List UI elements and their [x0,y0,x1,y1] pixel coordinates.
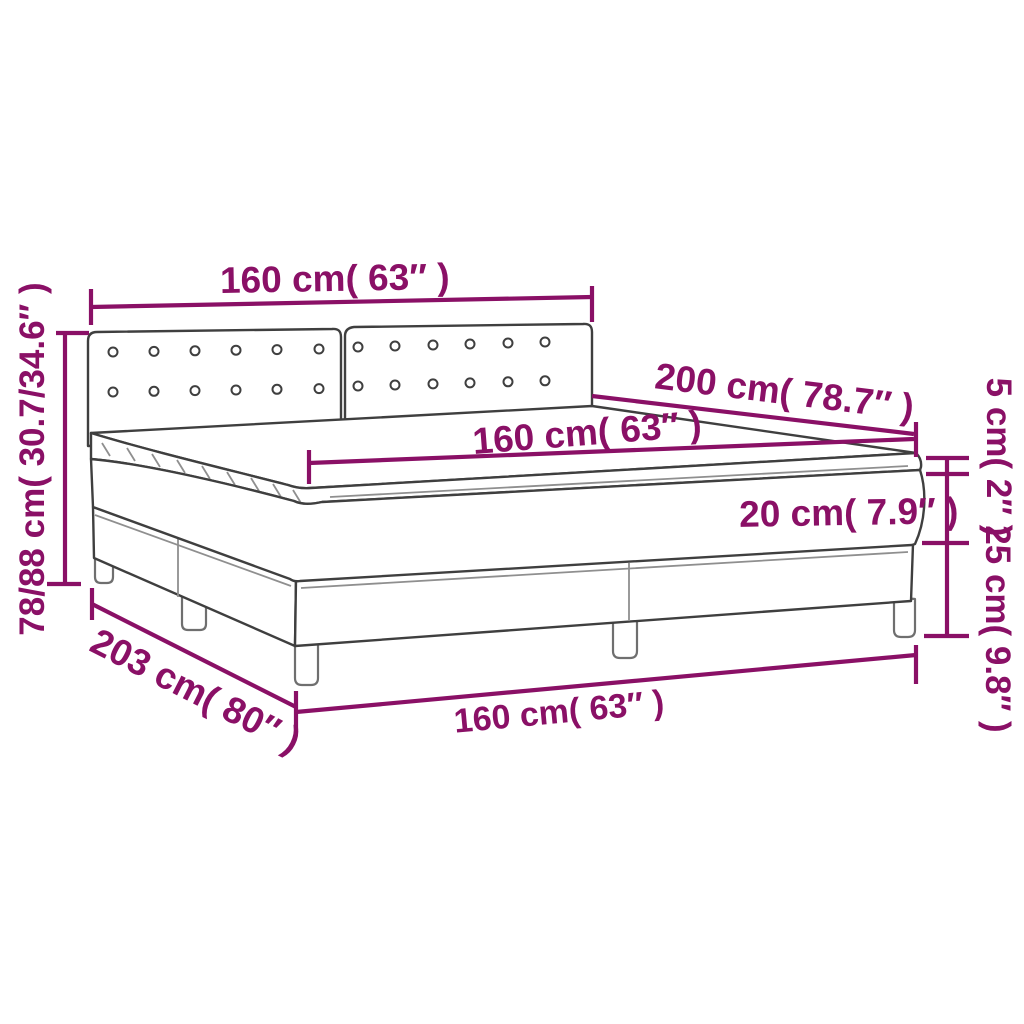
tufting-button [466,340,475,349]
tufting-button [315,345,324,354]
dim-headboard-width: 160 cm( 63″ ) [91,256,592,325]
tufting-button [429,379,438,388]
tufting-button [191,346,200,355]
dim-total-height: 78/88 cm( 30.7/34.6″ ) [13,282,89,635]
tufting-button [504,339,513,348]
bed-leg [613,618,637,658]
dim-label-topper-height: 5 cm( 2″ ) [979,378,1018,537]
dim-mattress-height: 20 cm( 7.9″ ) [739,490,959,535]
dim-tick [47,333,89,584]
bed-dimension-diagram-page: 160 cm( 63″ ) 78/88 cm( 30.7/34.6″ ) 200… [0,0,1024,1024]
tufting-button [315,384,324,393]
tufting-button [541,338,550,347]
tufting-button [232,346,241,355]
dim-label-mattress-height: 20 cm( 7.9″ ) [739,490,959,535]
tufting-button [150,347,159,356]
tufting-button [466,378,475,387]
tufting-button [273,345,282,354]
tufting-button [109,388,118,397]
tufting-button [354,382,363,391]
tufting-button [191,386,200,395]
tufting-button [354,343,363,352]
tufting-button [541,376,550,385]
tufting-button [232,386,241,395]
tufting-button [429,341,438,350]
tufting-button [273,385,282,394]
dim-label-frame-length: 203 cm( 80″ ) [84,620,307,761]
dim-label-total-height: 78/88 cm( 30.7/34.6″ ) [13,282,52,635]
tufting-button [391,342,400,351]
dim-label-headboard-width: 160 cm( 63″ ) [220,256,450,301]
tufting-button [150,387,159,396]
dim-frame-width: 160 cm( 63″ ) [296,645,916,741]
tufting-button [109,348,118,357]
dim-label-frame-width: 160 cm( 63″ ) [452,683,666,740]
tufting-button [391,381,400,390]
dim-label-base-height: 25 cm( 9.8″ ) [978,525,1017,732]
dim-right-height-stack: 5 cm( 2″ ) 25 cm( 9.8″ ) [922,378,1018,733]
tufting-button [504,377,513,386]
bed-dimension-diagram: 160 cm( 63″ ) 78/88 cm( 30.7/34.6″ ) 200… [0,0,1024,1024]
